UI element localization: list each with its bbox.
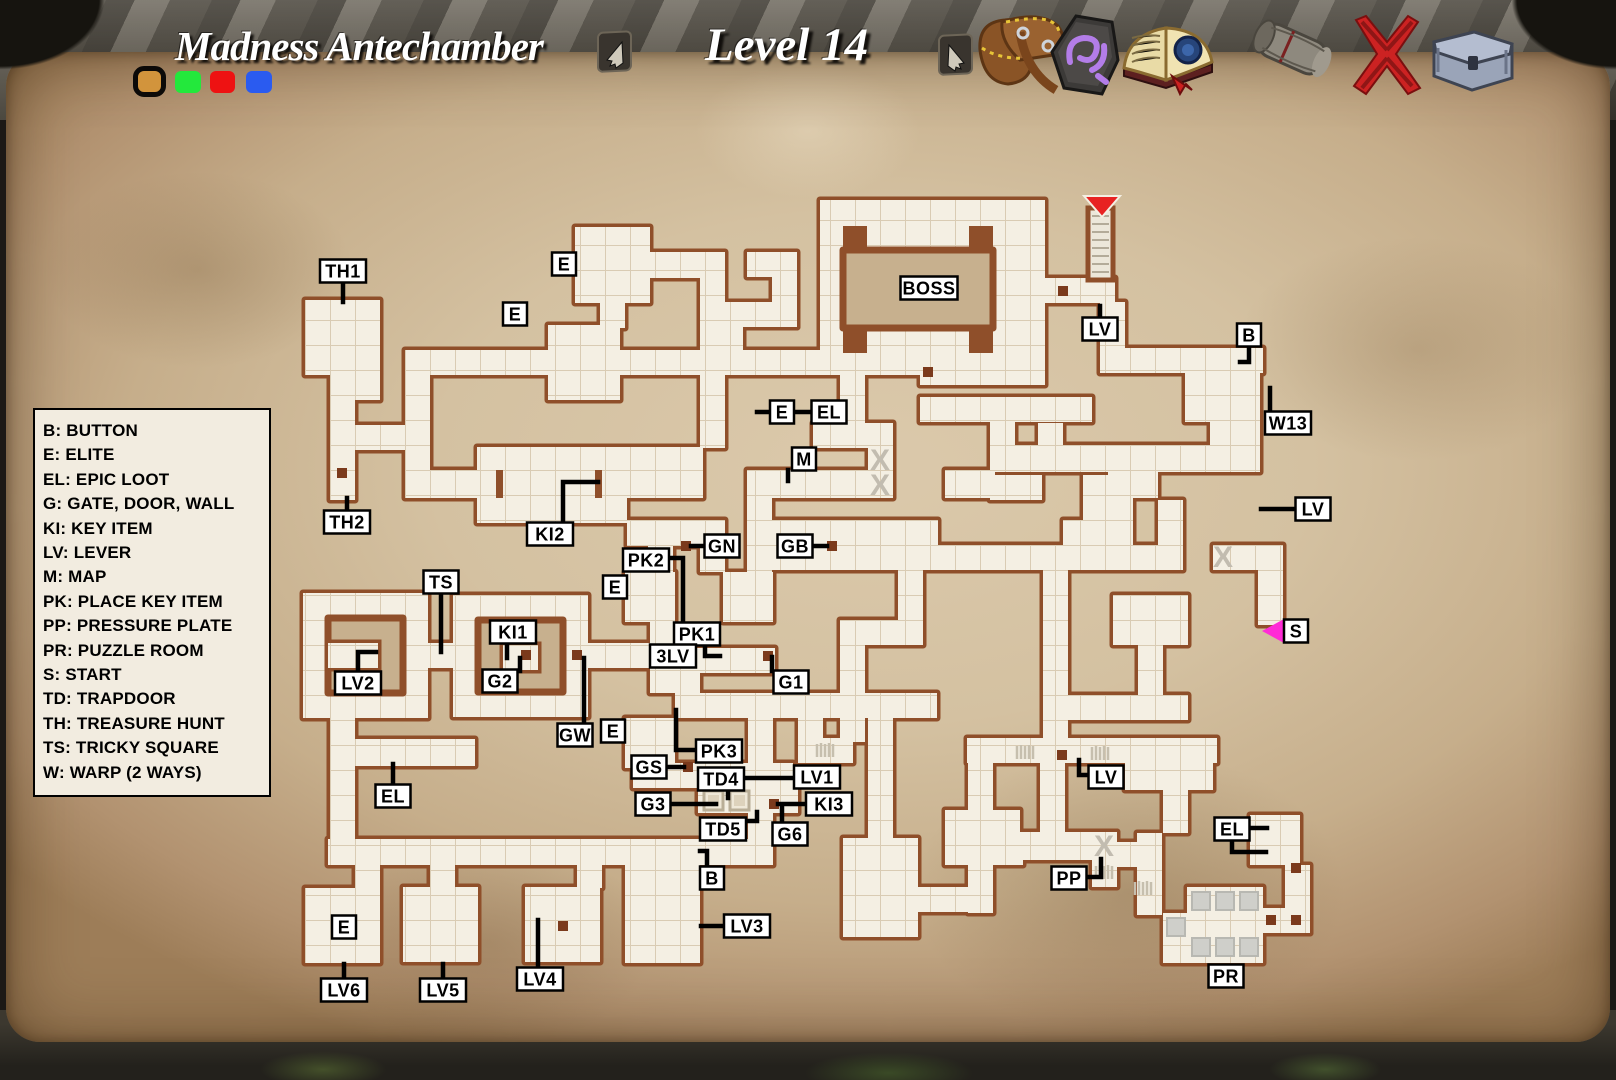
puzzle-pad	[1192, 938, 1210, 956]
svg-text:B: B	[1242, 326, 1256, 346]
svg-text:TH1: TH1	[325, 262, 361, 282]
trapdoor-tile	[730, 791, 749, 810]
svg-text:EL: EL	[381, 787, 405, 807]
svg-text:G6: G6	[777, 825, 802, 845]
rune-stone-icon[interactable]	[1046, 12, 1122, 100]
map-label-e-39: E	[332, 916, 356, 939]
button-dot	[1291, 863, 1301, 873]
map-label-lv5-41: LV5	[420, 979, 466, 1002]
legend-item: W: WARP (2 WAYS)	[43, 761, 262, 785]
svg-text:3LV: 3LV	[656, 647, 689, 667]
svg-text:GW: GW	[559, 726, 591, 746]
svg-text:PK2: PK2	[628, 551, 665, 571]
chest-icon[interactable]	[1424, 12, 1520, 96]
map-label-gb-14: GB	[778, 535, 813, 558]
trapdoor-tile	[704, 791, 723, 810]
map-label-g6-33: G6	[773, 823, 808, 846]
legend-item: TH: TREASURE HUNT	[43, 712, 262, 736]
map-label-lv2-21: LV2	[335, 672, 381, 695]
map-label-td4-28: TD4	[698, 768, 744, 791]
puzzle-pad	[1240, 892, 1258, 910]
pan-arrow-left-icon[interactable]	[597, 30, 633, 74]
color-swatch-green[interactable]	[175, 71, 201, 93]
legend-item: G: GATE, DOOR, WALL	[43, 492, 262, 516]
wall-block	[843, 226, 867, 250]
button-dot	[923, 367, 933, 377]
svg-text:LV: LV	[1302, 500, 1325, 520]
svg-text:W13: W13	[1269, 414, 1308, 434]
map-label-g2-22: G2	[483, 670, 518, 693]
blocked-x-mark: X	[1213, 541, 1233, 574]
map-label-ki2-4: KI2	[527, 523, 573, 546]
legend-item: E: ELITE	[43, 443, 262, 467]
svg-text:TS: TS	[429, 573, 453, 593]
map-title: Madness Antechamber	[175, 22, 575, 70]
svg-text:M: M	[796, 450, 812, 470]
legend-item: LV: LEVER	[43, 541, 262, 565]
map-label-b-36: B	[700, 867, 724, 890]
svg-text:LV: LV	[1089, 320, 1112, 340]
color-swatch-tan-selected[interactable]	[133, 66, 166, 97]
map-label-th1-0: TH1	[320, 260, 366, 283]
svg-text:G1: G1	[778, 673, 803, 693]
svg-text:LV5: LV5	[426, 981, 459, 1001]
blocked-x-mark: X	[870, 469, 890, 502]
svg-text:PK3: PK3	[701, 742, 738, 762]
puzzle-pad	[1216, 892, 1234, 910]
legend-item: S: START	[43, 663, 262, 687]
button-dot	[572, 650, 582, 660]
svg-text:LV2: LV2	[341, 674, 374, 694]
map-label-3lv-20: 3LV	[650, 645, 696, 668]
svg-text:B: B	[705, 869, 719, 889]
level-label: Level 14	[705, 18, 925, 72]
svg-text:LV3: LV3	[730, 917, 763, 937]
puzzle-pad	[1240, 938, 1258, 956]
legend-item: TS: TRICKY SQUARE	[43, 736, 262, 760]
svg-text:EL: EL	[1220, 820, 1244, 840]
svg-text:E: E	[558, 255, 571, 275]
map-label-e-6: E	[770, 401, 794, 424]
map-label-lv3-37: LV3	[724, 915, 770, 938]
button-dot	[1266, 915, 1276, 925]
svg-text:KI2: KI2	[535, 525, 565, 545]
legend-item: PK: PLACE KEY ITEM	[43, 590, 262, 614]
puzzle-pad	[1216, 938, 1234, 956]
map-label-pk1-19: PK1	[674, 623, 720, 646]
spellbook-icon[interactable]	[1116, 6, 1220, 96]
svg-text:E: E	[338, 918, 351, 938]
svg-text:E: E	[509, 305, 522, 325]
svg-text:LV1: LV1	[800, 768, 833, 788]
svg-text:PP: PP	[1056, 869, 1081, 889]
wall-block	[496, 470, 503, 498]
close-x-icon[interactable]	[1346, 10, 1428, 98]
svg-text:G3: G3	[640, 795, 665, 815]
map-label-lv6-40: LV6	[321, 979, 367, 1002]
map-label-e-2: E	[552, 253, 576, 276]
map-label-pk3-26: PK3	[696, 740, 742, 763]
color-swatch-blue[interactable]	[246, 71, 272, 93]
map-label-w13-11: W13	[1265, 412, 1311, 435]
map-label-th2-1: TH2	[324, 511, 370, 534]
map-label-lv4-42: LV4	[517, 968, 563, 991]
map-label-e-25: E	[601, 720, 625, 743]
map-label-ki1-18: KI1	[490, 621, 536, 644]
svg-text:TH2: TH2	[329, 513, 365, 533]
map-label-g1-23: G1	[774, 671, 809, 694]
puzzle-pad	[1192, 892, 1210, 910]
svg-text:LV4: LV4	[523, 970, 556, 990]
legend-item: B: BUTTON	[43, 419, 262, 443]
map-label-m-8: M	[792, 448, 816, 471]
map-legend: B: BUTTONE: ELITEEL: EPIC LOOTG: GATE, D…	[33, 408, 271, 797]
puzzle-pad	[1167, 918, 1185, 936]
button-dot	[1058, 286, 1068, 296]
map-label-lv1-29: LV1	[794, 766, 840, 789]
map-label-e-3: E	[503, 303, 527, 326]
svg-text:TD4: TD4	[703, 770, 739, 790]
map-label-b-10: B	[1237, 324, 1261, 347]
legend-item: KI: KEY ITEM	[43, 517, 262, 541]
svg-text:GB: GB	[781, 537, 809, 557]
svg-text:E: E	[776, 403, 789, 423]
map-label-ki3-31: KI3	[806, 793, 852, 816]
map-label-lv-12: LV	[1296, 498, 1331, 521]
svg-text:PK1: PK1	[679, 625, 716, 645]
svg-text:KI1: KI1	[498, 623, 528, 643]
map-label-el-38: EL	[376, 785, 411, 808]
map-label-e-16: E	[603, 576, 627, 599]
svg-text:S: S	[1290, 622, 1303, 642]
scroll-icon[interactable]	[1244, 2, 1340, 98]
button-dot	[1291, 915, 1301, 925]
map-label-el-44: EL	[1215, 818, 1250, 841]
button-dot	[521, 650, 531, 660]
svg-text:E: E	[607, 722, 620, 742]
map-label-lv-35: LV	[1089, 766, 1124, 789]
map-label-gs-27: GS	[632, 756, 667, 779]
svg-text:GN: GN	[708, 537, 736, 557]
map-label-s-34: S	[1284, 620, 1308, 643]
svg-text:TD5: TD5	[705, 820, 741, 840]
legend-item: TD: TRAPDOOR	[43, 687, 262, 711]
map-label-td5-32: TD5	[700, 818, 746, 841]
color-swatch-red[interactable]	[210, 71, 235, 93]
blocked-x-mark: X	[1094, 830, 1114, 863]
button-dot	[558, 921, 568, 931]
map-label-el-7: EL	[812, 401, 847, 424]
svg-text:PR: PR	[1213, 967, 1239, 987]
map-label-gn-13: GN	[705, 535, 740, 558]
legend-item: M: MAP	[43, 565, 262, 589]
legend-item: PP: PRESSURE PLATE	[43, 614, 262, 638]
button-dot	[1057, 750, 1067, 760]
svg-text:KI3: KI3	[814, 795, 844, 815]
svg-text:BOSS: BOSS	[902, 279, 955, 299]
map-label-g3-30: G3	[636, 793, 671, 816]
svg-text:GS: GS	[635, 758, 662, 778]
map-label-gw-24: GW	[558, 724, 593, 747]
map-label-pp-43: PP	[1052, 867, 1087, 890]
map-label-lv-9: LV	[1083, 318, 1118, 341]
svg-text:LV6: LV6	[327, 981, 360, 1001]
legend-item: PR: PUZZLE ROOM	[43, 639, 262, 663]
svg-text:E: E	[609, 578, 622, 598]
svg-text:G2: G2	[487, 672, 512, 692]
map-label-pr-45: PR	[1209, 965, 1244, 988]
map-label-boss-5: BOSS	[901, 277, 958, 300]
legend-item: EL: EPIC LOOT	[43, 468, 262, 492]
wall-block	[843, 329, 867, 353]
svg-text:EL: EL	[817, 403, 841, 423]
wall-block	[969, 329, 993, 353]
exit-stairs-scroll	[1084, 196, 1120, 280]
button-dot	[337, 468, 347, 478]
wall-block	[969, 226, 993, 250]
svg-text:LV: LV	[1095, 768, 1118, 788]
map-label-ts-17: TS	[424, 571, 459, 594]
map-label-pk2-15: PK2	[623, 549, 669, 572]
